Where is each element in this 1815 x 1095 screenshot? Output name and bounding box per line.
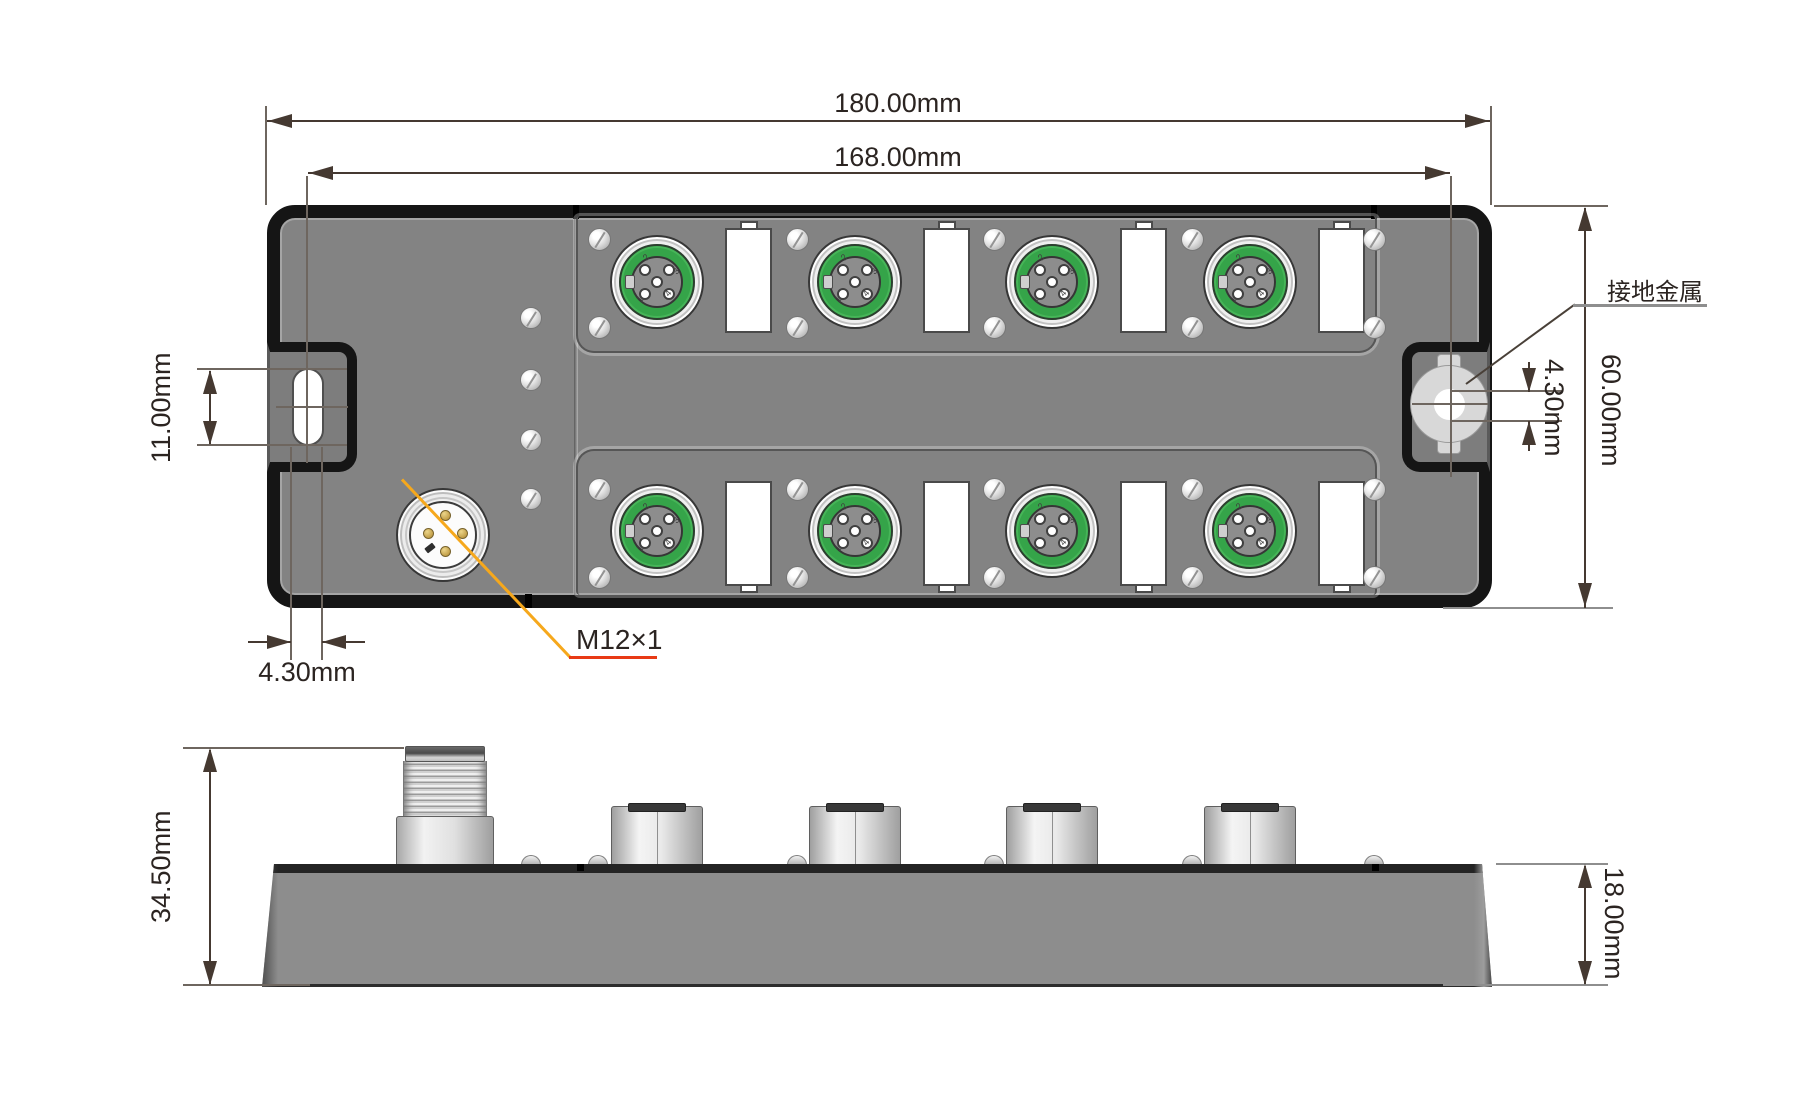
screw-slot <box>792 320 803 336</box>
label-plate <box>1318 481 1365 593</box>
side-m12-male-thread <box>403 761 487 816</box>
screw-slot <box>594 320 605 336</box>
screw-slot <box>989 570 1000 586</box>
dim-345-line <box>209 750 211 984</box>
label-plate-body <box>1318 228 1365 333</box>
screw-slot <box>526 492 537 508</box>
ext-line <box>306 176 308 463</box>
screw <box>1181 478 1204 501</box>
label-plate <box>725 481 772 593</box>
connector-keyway <box>1218 524 1228 538</box>
dim-arrow <box>203 421 217 445</box>
pin-hole <box>639 264 651 276</box>
pin-hole <box>639 513 651 525</box>
screw-slot <box>1187 232 1198 248</box>
side-body-top-band <box>262 864 1492 873</box>
label-plate-body <box>1318 481 1365 586</box>
pin-hole <box>1244 276 1256 288</box>
stub-seam <box>1250 807 1251 864</box>
stub-socket-top <box>1221 803 1279 812</box>
side-body-seam-notch <box>577 864 584 871</box>
dim-arrow <box>1578 961 1592 985</box>
label-plate <box>923 481 970 593</box>
screw <box>983 566 1006 589</box>
connector-keyway <box>823 275 833 289</box>
screw-slot <box>792 482 803 498</box>
label-plate-body <box>923 228 970 333</box>
side-connector-stub <box>1006 806 1098 865</box>
male-pin <box>440 546 451 557</box>
center-line <box>276 406 348 408</box>
pin-hole <box>837 513 849 525</box>
dim-arrow <box>1578 864 1592 888</box>
dim-arrow <box>268 114 292 128</box>
side-connector-stub <box>809 806 901 865</box>
label-plate <box>1120 481 1167 593</box>
pin-hole <box>1046 525 1058 537</box>
screw-slot <box>526 373 537 389</box>
dim-arrow <box>1578 583 1592 607</box>
side-connector-stub <box>611 806 703 865</box>
pin-hole <box>1034 264 1046 276</box>
label-plate <box>923 221 970 333</box>
m12-female-connector: 1234 <box>1203 484 1297 578</box>
connector-keyway <box>625 275 635 289</box>
pin-hole <box>849 525 861 537</box>
screw-slot <box>1187 320 1198 336</box>
dim-arrow <box>203 961 217 985</box>
screw-slot <box>989 482 1000 498</box>
screw-bump <box>787 855 807 865</box>
connector-keyway <box>1218 275 1228 289</box>
screw-slot <box>1187 570 1198 586</box>
screw <box>1363 478 1386 501</box>
pin-hole <box>849 276 861 288</box>
pin-hole <box>1232 264 1244 276</box>
screw <box>983 478 1006 501</box>
stub-socket-top <box>1023 803 1081 812</box>
label-plate <box>1120 221 1167 333</box>
dim-ground-hole: 4.30mm <box>1538 358 1569 458</box>
m12-female-connector: 1234 <box>808 484 902 578</box>
screw <box>1363 228 1386 251</box>
pin-hole <box>1244 525 1256 537</box>
screw <box>983 228 1006 251</box>
center-line <box>1412 403 1488 405</box>
screw-slot <box>1369 320 1380 336</box>
screw-slot <box>1369 482 1380 498</box>
screw <box>786 228 809 251</box>
dim-body-height: 60.00mm <box>1595 345 1626 475</box>
dimension-drawing: 12341234123412341234123412341234 180.00m… <box>0 0 1815 1095</box>
connector-keyway <box>1020 524 1030 538</box>
pin-hole <box>1034 513 1046 525</box>
pin-hole <box>651 276 663 288</box>
screw <box>786 478 809 501</box>
screw-bump <box>1182 855 1202 865</box>
side-view-body <box>262 864 1492 987</box>
dim-side-body-height: 18.00mm <box>1598 862 1629 984</box>
m12-male-connector <box>396 488 490 582</box>
screw-slot <box>594 482 605 498</box>
dim-arrow <box>1465 114 1489 128</box>
screw-bump <box>1364 855 1384 865</box>
label-plate <box>1318 221 1365 333</box>
screw <box>1363 566 1386 589</box>
ext-line <box>290 447 292 660</box>
screw-bump <box>588 855 608 865</box>
dim-60-line <box>1584 208 1586 608</box>
m12-female-connector: 1234 <box>1005 484 1099 578</box>
screw <box>520 307 542 329</box>
screw <box>588 316 611 339</box>
dim-slot-width: 4.30mm <box>255 657 359 688</box>
screw <box>1181 316 1204 339</box>
dim-width-outer: 180.00mm <box>828 88 968 119</box>
side-m12-male-collar <box>396 816 494 865</box>
screw-slot <box>989 232 1000 248</box>
label-plate-body <box>725 481 772 586</box>
ext-line <box>1443 607 1613 609</box>
stub-socket-top <box>826 803 884 812</box>
dim-width-inner: 168.00mm <box>828 142 968 173</box>
label-plate-body <box>1120 481 1167 586</box>
dim-slot-length: 11.00mm <box>146 350 177 465</box>
screw-slot <box>792 232 803 248</box>
screw-bump <box>521 855 541 865</box>
stub-seam <box>1052 807 1053 864</box>
screw-slot <box>526 433 537 449</box>
screw <box>588 228 611 251</box>
screw <box>520 488 542 510</box>
pin-hole <box>1046 276 1058 288</box>
screw-slot <box>526 311 537 327</box>
m12-female-connector: 1234 <box>1005 235 1099 329</box>
dim-arrow <box>322 635 346 649</box>
dim-180-line <box>267 120 1490 122</box>
screw <box>786 316 809 339</box>
label-plate <box>725 221 772 333</box>
stub-seam <box>855 807 856 864</box>
male-pin <box>423 528 434 539</box>
screw <box>983 316 1006 339</box>
screw-slot <box>989 320 1000 336</box>
m12-female-connector: 1234 <box>610 235 704 329</box>
dim-arrow <box>1522 368 1536 392</box>
m12-female-connector: 1234 <box>1203 235 1297 329</box>
label-plate-body <box>725 228 772 333</box>
label-plate-body <box>923 481 970 586</box>
screw <box>520 369 542 391</box>
m12-label-underline <box>569 656 657 659</box>
connector-keyway <box>823 524 833 538</box>
dim-arrow <box>309 166 333 180</box>
screw <box>1181 228 1204 251</box>
m12-thread-label: M12×1 <box>576 624 662 656</box>
ext-line <box>197 368 347 370</box>
screw <box>786 566 809 589</box>
screw <box>588 478 611 501</box>
label-plate-body <box>1120 228 1167 333</box>
screw-slot <box>1187 482 1198 498</box>
side-body-seam-notch <box>1372 864 1379 871</box>
screw <box>1181 566 1204 589</box>
screw-bump <box>984 855 1004 865</box>
dim-total-height: 34.50mm <box>146 806 177 928</box>
pin-hole <box>651 525 663 537</box>
side-m12-male-cap <box>405 746 485 762</box>
dim-arrow <box>1522 421 1536 445</box>
stub-socket-top <box>628 803 686 812</box>
dim-arrow <box>1578 207 1592 231</box>
stub-seam <box>657 807 658 864</box>
screw-slot <box>1369 570 1380 586</box>
screw <box>588 566 611 589</box>
screw-slot <box>594 232 605 248</box>
pin-hole <box>837 264 849 276</box>
side-body-bottom-edge <box>262 984 1492 987</box>
screw-slot <box>594 570 605 586</box>
connector-keyway <box>625 524 635 538</box>
m12-female-connector: 1234 <box>808 235 902 329</box>
ext-line <box>1450 176 1452 477</box>
screw-slot <box>792 570 803 586</box>
m12-female-connector: 1234 <box>610 484 704 578</box>
connector-keyway <box>1020 275 1030 289</box>
ext-line <box>1490 106 1492 205</box>
ext-line <box>321 447 323 660</box>
dim-arrow <box>203 748 217 772</box>
dim-arrow <box>267 635 291 649</box>
screw <box>520 429 542 451</box>
pin-hole <box>1232 513 1244 525</box>
screw <box>1363 316 1386 339</box>
side-connector-stub <box>1204 806 1296 865</box>
screw-slot <box>1369 232 1380 248</box>
dim-arrow <box>1425 166 1449 180</box>
dim-arrow <box>203 370 217 394</box>
grounding-label: 接地金属 <box>1607 272 1703 307</box>
ext-line <box>197 444 347 446</box>
